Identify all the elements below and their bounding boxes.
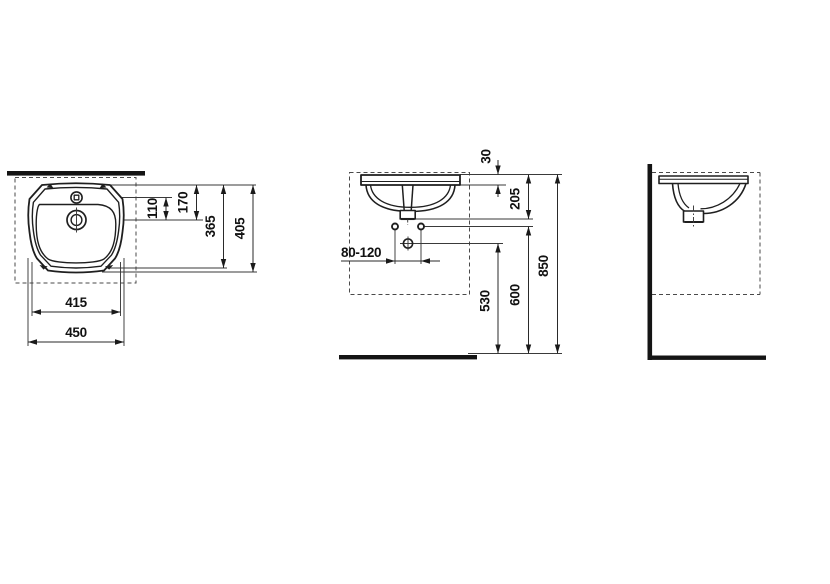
bowl-front	[366, 185, 455, 212]
rim-front	[361, 175, 460, 185]
dim-overall-depth-label: 405	[233, 217, 248, 239]
dim-trap-outlet-height-label: 530	[478, 290, 493, 312]
dim-fixing-hole-range: 80-120	[341, 245, 440, 264]
dim-rim-height: 850	[536, 175, 560, 354]
dim-fixing-hole-height-label: 600	[508, 284, 523, 306]
dim-overall-depth: 405	[233, 185, 256, 272]
sink-outline-outer	[28, 183, 124, 272]
wall-bar-side-view	[648, 164, 653, 360]
fixing-hole-left	[392, 224, 398, 230]
dim-rim-to-outlet-label: 205	[508, 187, 523, 209]
technical-drawing: 110 170 365 405 415	[0, 0, 830, 584]
dim-overall-width: 450	[28, 325, 124, 345]
bowl-side	[673, 184, 747, 214]
top-view: 110 170 365 405 415	[7, 171, 257, 346]
drawing-canvas: 110 170 365 405 415	[0, 0, 830, 584]
dim-basin-depth-label: 365	[203, 215, 218, 237]
fixing-hole-right	[418, 224, 424, 230]
wall-bar-top-view	[7, 171, 145, 176]
dim-rim-height-label: 850	[536, 255, 551, 277]
dim-rim-to-outlet: 205	[508, 175, 532, 220]
floor-bar-side-view	[648, 356, 767, 360]
dim-basin-width: 415	[32, 295, 121, 315]
dim-trap-outlet-height: 530	[478, 244, 501, 354]
floor-bar-front-view	[339, 355, 477, 359]
dim-fixing-hole-range-label: 80-120	[341, 245, 381, 260]
dim-front-edge-to-drain: 170	[176, 185, 200, 220]
dim-basin-width-label: 415	[65, 295, 87, 310]
front-view: 30 205 80-120 530 600	[339, 149, 562, 359]
dim-tap-to-drain-label: 110	[145, 198, 160, 219]
dim-rim-thickness: 30	[479, 149, 501, 197]
dim-tap-to-drain: 110	[145, 198, 169, 221]
dim-basin-depth: 365	[203, 185, 226, 268]
dim-front-edge-to-drain-label: 170	[176, 192, 191, 214]
drain-stub-front	[400, 211, 415, 226]
dim-overall-width-label: 450	[65, 325, 87, 340]
dim-rim-thickness-label: 30	[479, 149, 494, 163]
side-view	[648, 164, 767, 360]
dim-fixing-hole-height: 600	[508, 227, 532, 354]
rim-side	[659, 176, 748, 184]
